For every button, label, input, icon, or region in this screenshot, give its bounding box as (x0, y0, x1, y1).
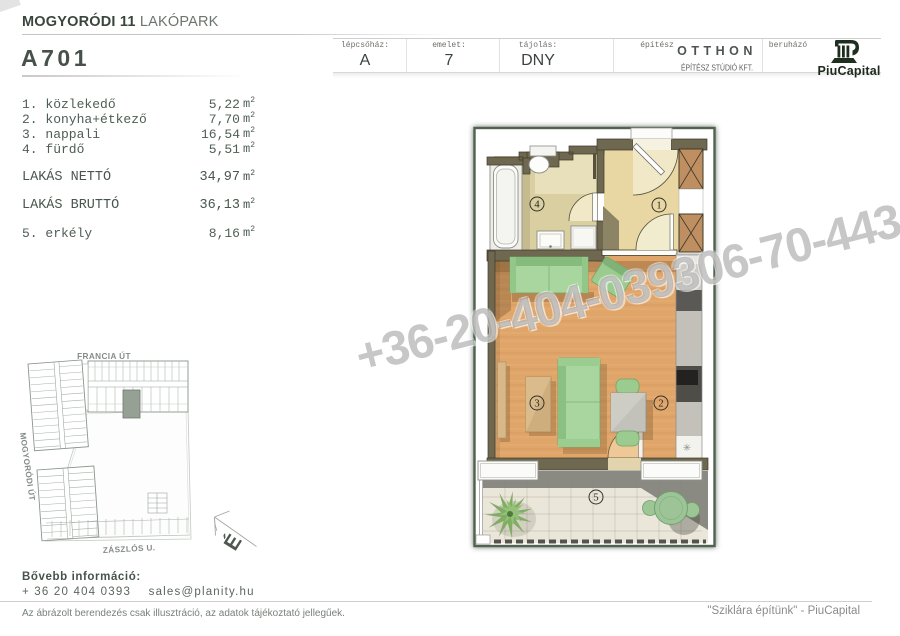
svg-text:4: 4 (534, 200, 540, 211)
svg-text:FRANCIA ÚT: FRANCIA ÚT (77, 350, 131, 361)
svg-text:1: 1 (656, 201, 661, 212)
svg-text:✳: ✳ (683, 443, 691, 454)
svg-text:É: É (220, 531, 247, 555)
svg-text:5: 5 (593, 493, 598, 504)
svg-text:ZÁSZLÓS U.: ZÁSZLÓS U. (103, 541, 156, 555)
svg-text:2: 2 (658, 399, 663, 410)
svg-text:3: 3 (534, 399, 539, 410)
